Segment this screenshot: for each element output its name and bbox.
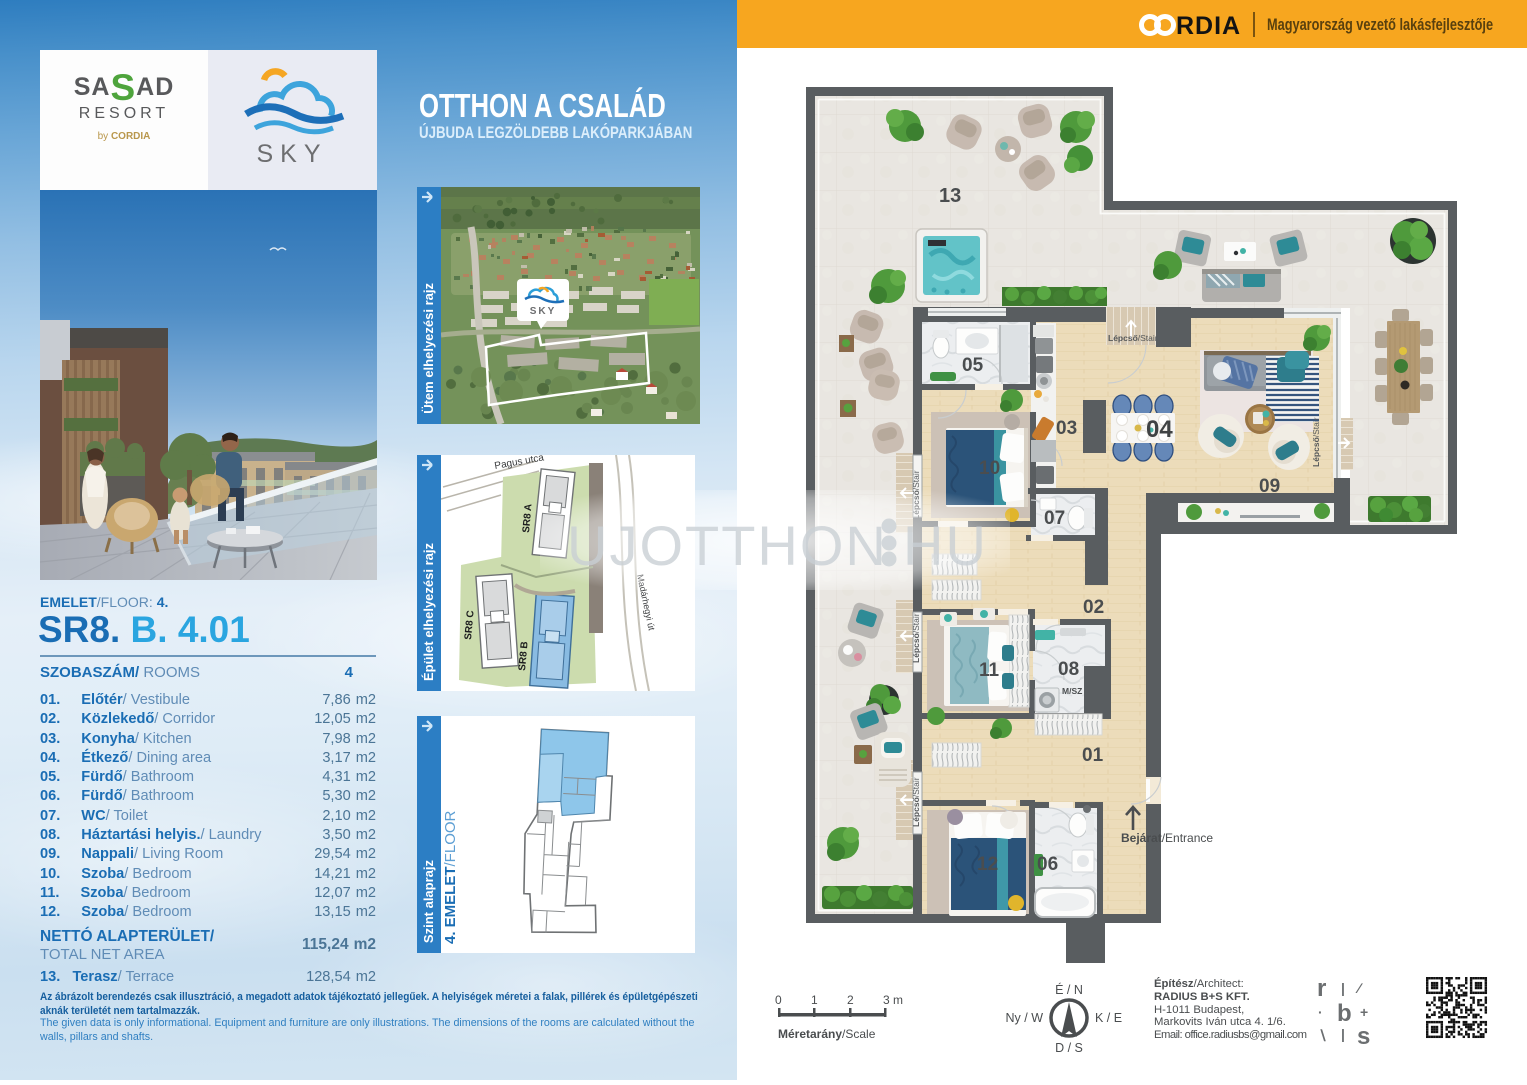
svg-text:·: · (1318, 1004, 1323, 1020)
svg-text:Bejárat/Entrance: Bejárat/Entrance (1121, 831, 1213, 845)
svg-text:03: 03 (1056, 418, 1077, 439)
svg-text:Lépcső/Stair: Lépcső/Stair (911, 613, 921, 663)
svg-text:02: 02 (1083, 597, 1104, 618)
svg-text:Lépcső/Stair: Lépcső/Stair (911, 777, 921, 827)
svg-text:K / E: K / E (1095, 1011, 1122, 1025)
svg-text:1: 1 (811, 993, 818, 1007)
svg-text:|: | (1341, 980, 1345, 996)
svg-text:Ny / W: Ny / W (1006, 1011, 1044, 1025)
svg-text:Méretarány/Scale: Méretarány/Scale (778, 1027, 876, 1041)
svg-text:D / S: D / S (1055, 1041, 1083, 1055)
svg-text:0: 0 (775, 993, 782, 1007)
svg-text:+: + (1360, 1004, 1368, 1020)
svg-text:b: b (1337, 1000, 1352, 1027)
svg-text:13: 13 (939, 185, 961, 207)
svg-text:04: 04 (1146, 416, 1173, 443)
svg-text:2: 2 (847, 993, 854, 1007)
svg-text:É / N: É / N (1055, 982, 1083, 997)
svg-text:Pagus utca: Pagus utca (494, 455, 546, 472)
svg-text:08: 08 (1058, 659, 1079, 680)
svg-text:|: | (1341, 1026, 1345, 1042)
svg-text:H-1011 Budapest,: H-1011 Budapest, (1154, 1004, 1244, 1016)
svg-text:∕: ∕ (1355, 980, 1363, 996)
svg-text:M/SZ: M/SZ (1062, 686, 1082, 696)
svg-text:11: 11 (979, 660, 1000, 681)
svg-text:10: 10 (979, 458, 1000, 479)
svg-text:RDIA: RDIA (1176, 12, 1241, 40)
svg-text:07: 07 (1044, 508, 1065, 529)
svg-text:SKY: SKY (530, 306, 557, 317)
svg-text:4. EMELET/FLOOR: 4. EMELET/FLOOR (442, 810, 459, 944)
svg-text:r: r (1317, 975, 1326, 1002)
svg-text:Lépcső/Stair: Lépcső/Stair (1311, 417, 1321, 467)
svg-text:SKY: SKY (256, 140, 327, 168)
svg-text:Markovits Iván utca 4. 1/6.: Markovits Iván utca 4. 1/6. (1154, 1016, 1286, 1028)
svg-text:01: 01 (1082, 745, 1104, 766)
svg-text:s: s (1357, 1023, 1370, 1050)
svg-text:06: 06 (1037, 854, 1058, 875)
svg-text:Lépcső/Stair: Lépcső/Stair (1108, 333, 1158, 343)
svg-text:Építész/Architect:: Építész/Architect: (1154, 977, 1244, 990)
svg-text:3 m: 3 m (883, 993, 903, 1007)
svg-text:RADIUS B+S KFT.: RADIUS B+S KFT. (1154, 991, 1250, 1003)
svg-text:Email: office.radiusbs@gmail.c: Email: office.radiusbs@gmail.com (1154, 1029, 1307, 1041)
svg-text:∖: ∖ (1318, 1027, 1327, 1043)
svg-text:12: 12 (977, 854, 998, 875)
svg-text:09: 09 (1259, 476, 1280, 497)
svg-text:05: 05 (962, 355, 984, 376)
